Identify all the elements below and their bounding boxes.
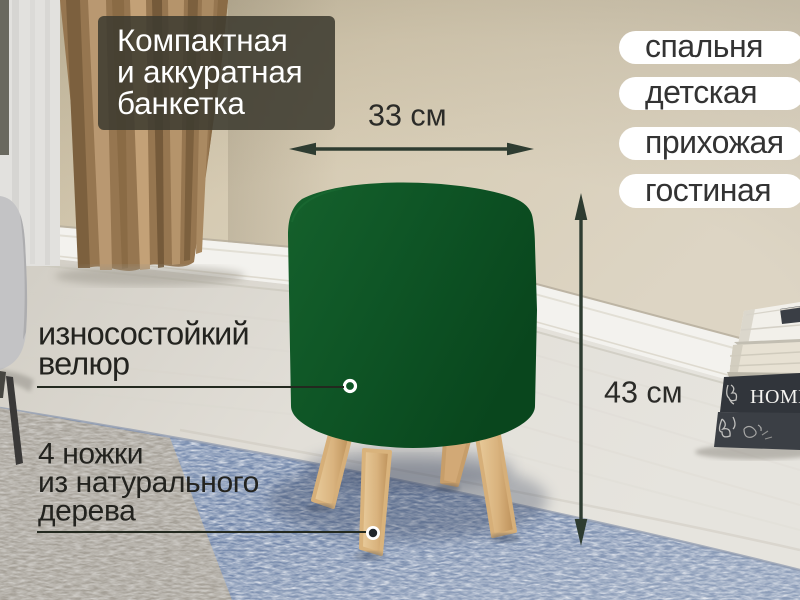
svg-text:43 см: 43 см	[604, 376, 683, 410]
svg-text:велюр: велюр	[38, 346, 129, 382]
svg-text:HOME: HOME	[750, 386, 800, 408]
svg-text:банкетка: банкетка	[117, 85, 245, 121]
svg-text:33 см: 33 см	[368, 99, 447, 133]
svg-text:дерева: дерева	[38, 495, 136, 528]
svg-text:прихожая: прихожая	[645, 124, 784, 160]
svg-text:спальня: спальня	[645, 28, 763, 64]
svg-text:гостиная: гостиная	[645, 172, 771, 208]
svg-text:детская: детская	[645, 74, 757, 110]
